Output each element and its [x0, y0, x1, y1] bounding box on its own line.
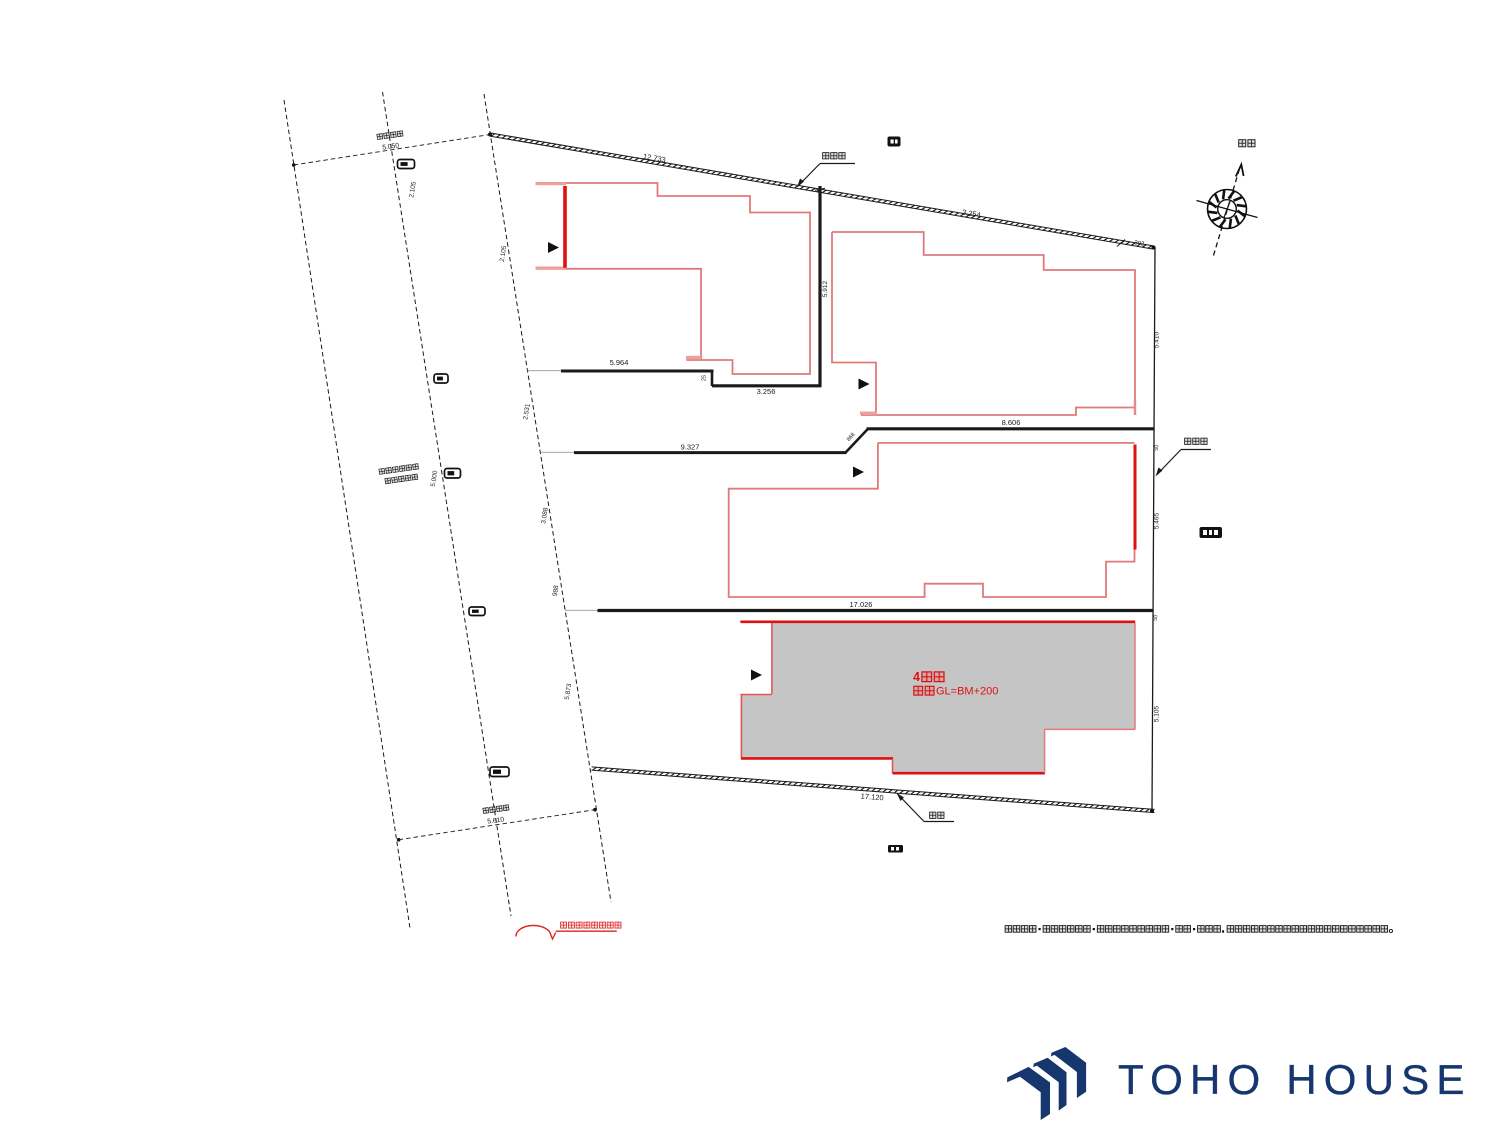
svg-text:4: 4 [913, 670, 920, 684]
svg-text:25: 25 [702, 375, 708, 381]
svg-text:GL=BM+200: GL=BM+200 [936, 686, 998, 698]
svg-text:5.105: 5.105 [1154, 705, 1161, 722]
svg-text:17.026: 17.026 [850, 600, 873, 609]
svg-text:TOHO HOUSE: TOHO HOUSE [1118, 1056, 1472, 1103]
svg-text:17.120: 17.120 [860, 792, 884, 803]
svg-text:9.327: 9.327 [681, 443, 700, 452]
svg-text:5.912: 5.912 [822, 280, 829, 297]
svg-text:5.465: 5.465 [1154, 512, 1161, 529]
svg-text:50: 50 [1153, 614, 1160, 621]
svg-text:5.410: 5.410 [1154, 331, 1161, 348]
svg-text:50: 50 [1154, 444, 1161, 451]
svg-text:5.964: 5.964 [610, 358, 629, 367]
svg-text:3.256: 3.256 [757, 387, 776, 396]
svg-text:8.606: 8.606 [1002, 418, 1021, 427]
